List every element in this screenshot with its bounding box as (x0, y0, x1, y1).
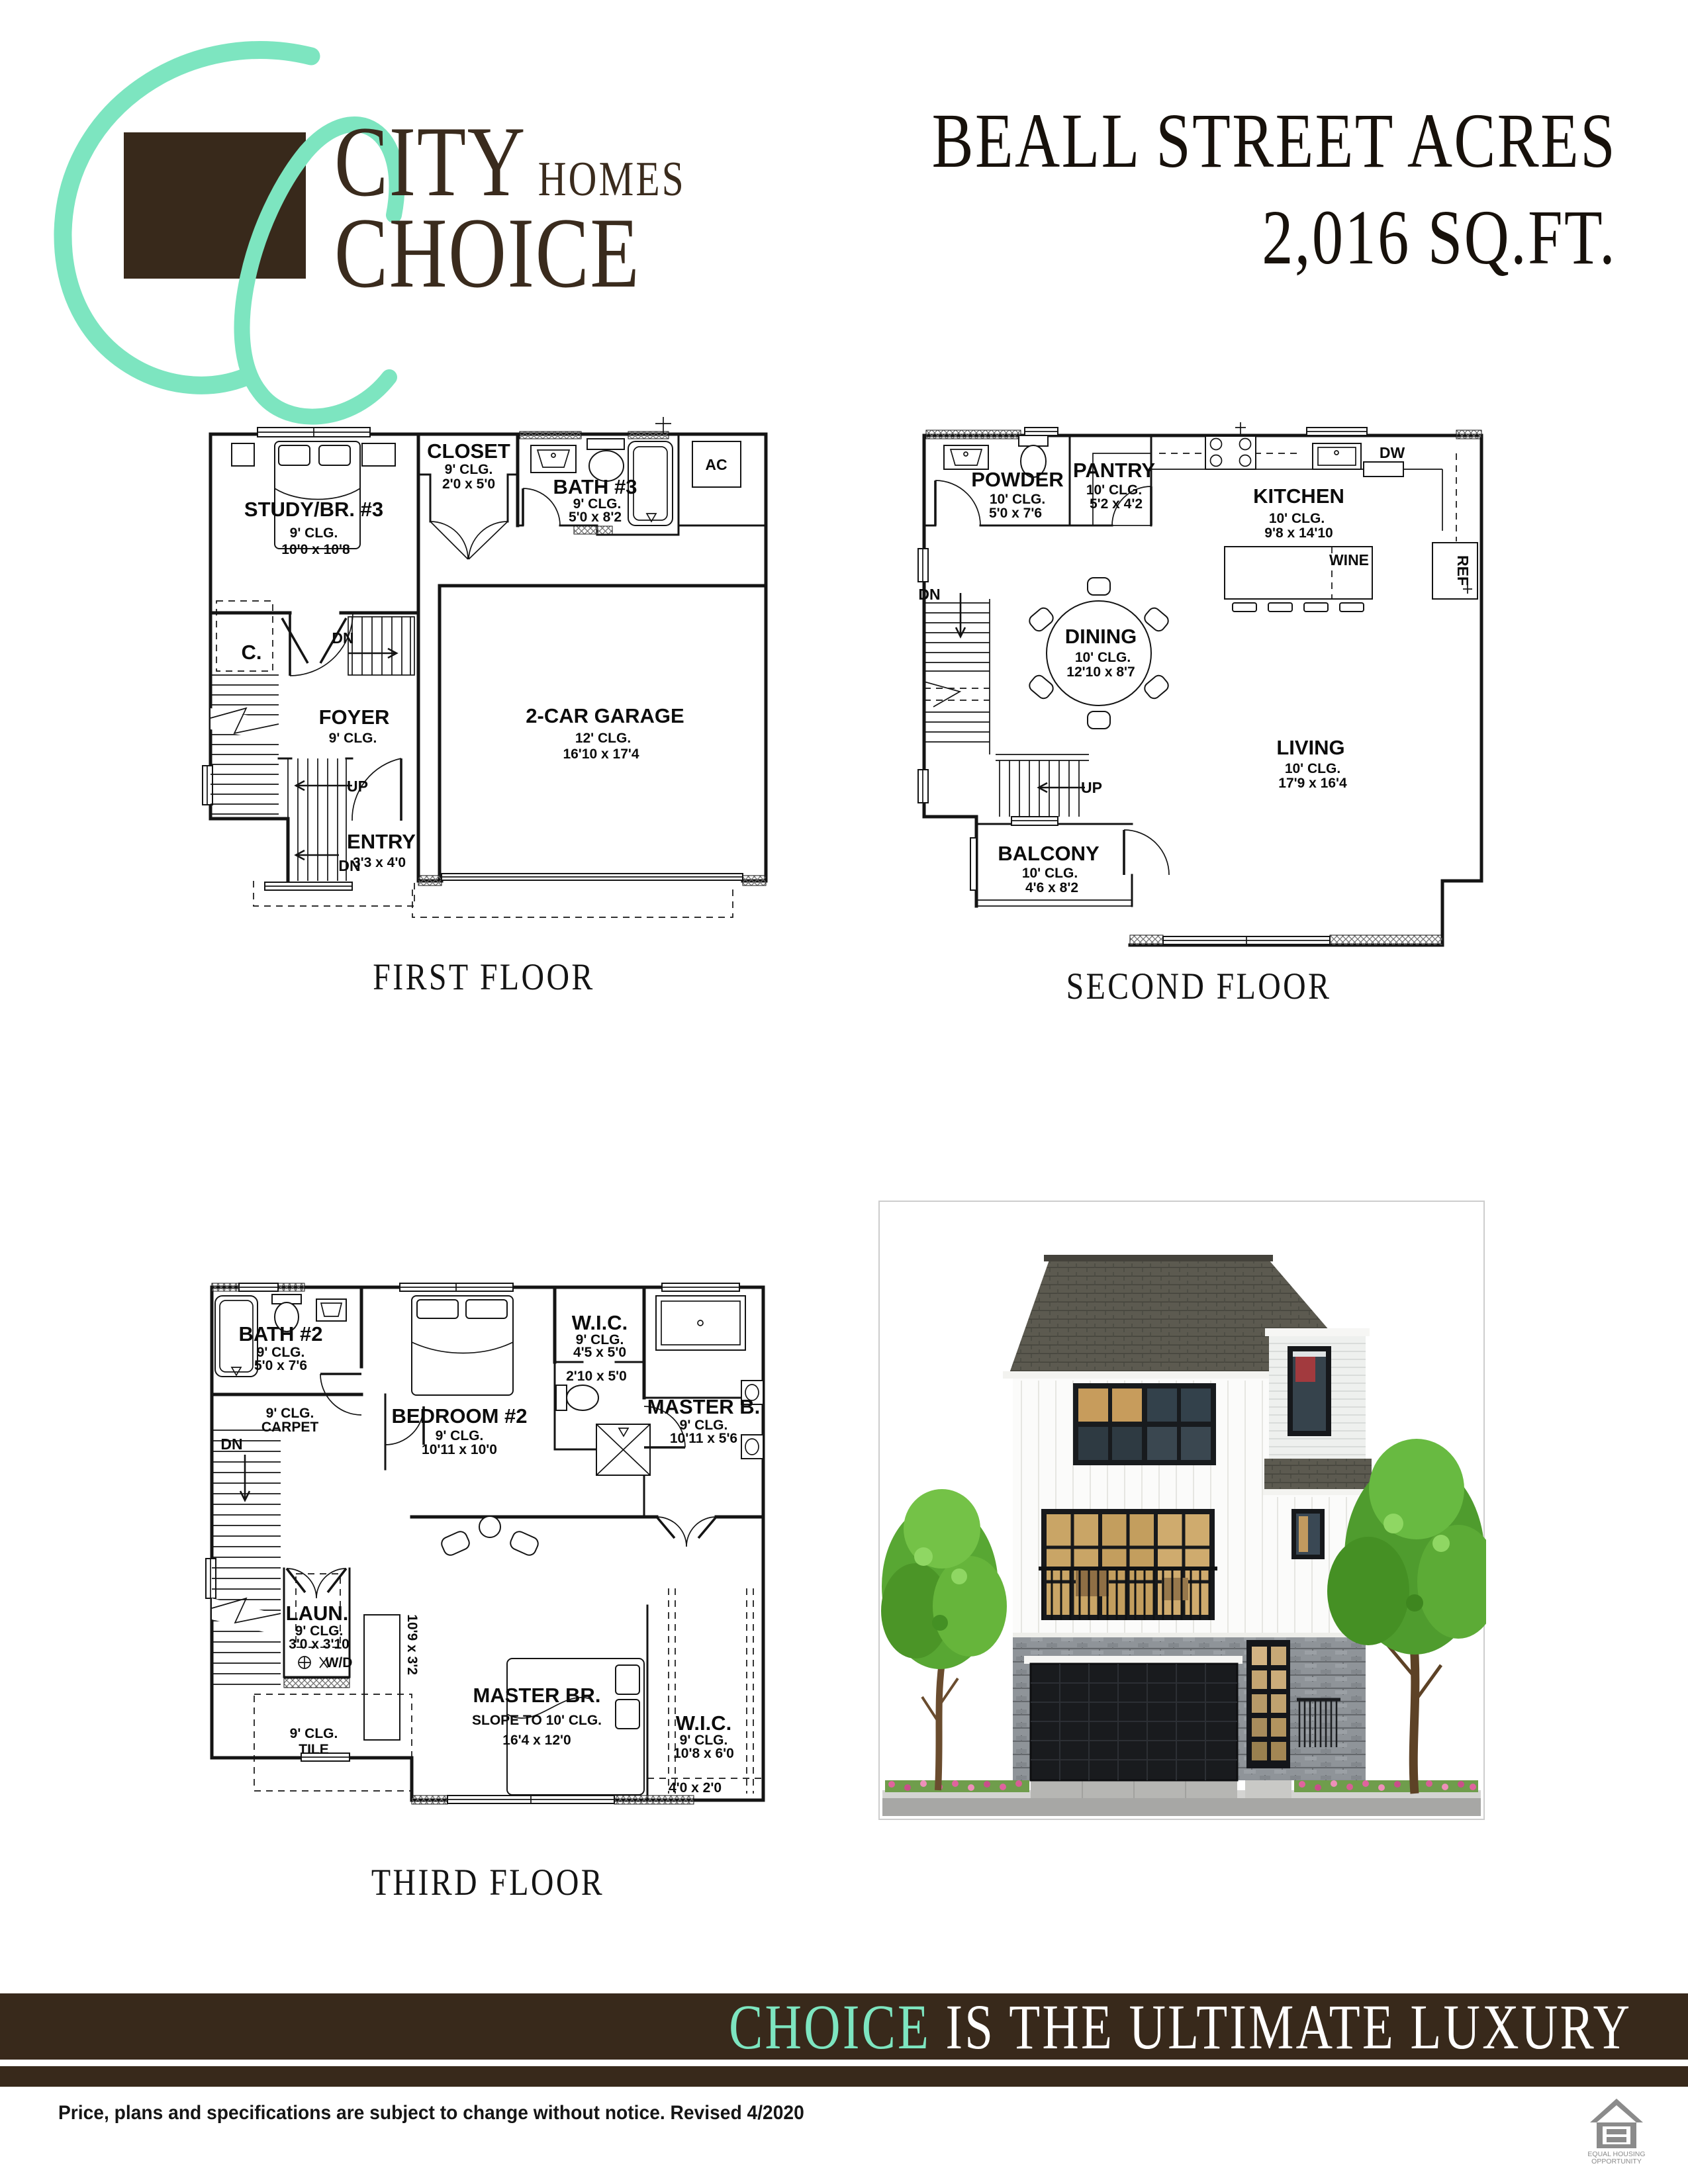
label-masterb-dims: 10'11 x 5'6 (670, 1431, 737, 1446)
brand-wordmark: CITY HOMES CHOICE (334, 111, 686, 303)
label-ac: AC (705, 456, 727, 473)
third-floor-plan: BATH #2 9' CLG. 5'0 x 7'6 BEDROOM #2 9' … (185, 1257, 781, 1853)
driveway (1031, 1779, 1291, 1798)
bedroom2-bed-icon (412, 1296, 513, 1395)
label-tile-floor: TILE (299, 1742, 329, 1757)
label-bath2-dims: 5'0 x 7'6 (254, 1358, 307, 1373)
label-bedroom2: BEDROOM #2 (392, 1404, 528, 1428)
label-wic2: W.I.C. (676, 1711, 731, 1735)
label-entry-dims: 3'3 x 4'0 (353, 855, 406, 870)
label-up: UP (1081, 779, 1102, 796)
label-study: STUDY/BR. #3 (244, 498, 383, 521)
label-dn: DN (918, 586, 940, 603)
dashed-outlines (216, 601, 733, 917)
main-roof (1008, 1260, 1269, 1377)
label-kitchen: KITCHEN (1253, 484, 1344, 508)
label-bedroom2-dims: 10'11 x 10'0 (422, 1442, 497, 1457)
caption-second-floor: SECOND FLOOR (1027, 965, 1372, 1008)
label-landing-clg: 9' CLG. (266, 1406, 314, 1421)
label-foyer: FOYER (319, 705, 390, 729)
label-dining: DINING (1065, 625, 1137, 648)
label-masterbr: MASTER BR. (473, 1684, 601, 1707)
label-pantry: PANTRY (1073, 459, 1155, 482)
label-bath2: BATH #2 (239, 1322, 323, 1345)
tagline-banner: CHOICE IS THE ULTIMATE LUXURY (0, 1993, 1688, 2060)
sitting-area (440, 1516, 540, 1557)
room-labels: POWDER 10' CLG. 5'0 x 7'6 PANTRY 10' CLG… (918, 444, 1472, 895)
equal-housing-line2: OPPORTUNITY (1591, 2158, 1642, 2165)
house-rendering (877, 1199, 1486, 1821)
tagline-rest: IS THE ULTIMATE LUXURY (931, 1990, 1632, 2064)
garage-door (442, 874, 743, 880)
caption-third-floor: THIRD FLOOR (316, 1861, 661, 1904)
plan-title: BEALL STREET ACRES 2,016 SQ.FT. (932, 93, 1617, 287)
caption-first-floor: FIRST FLOOR (312, 956, 657, 999)
label-living-clg: 10' CLG. (1285, 761, 1340, 776)
label-balcony-clg: 10' CLG. (1022, 866, 1078, 881)
equal-housing-house-icon (1590, 2099, 1643, 2148)
label-balcony: BALCONY (998, 842, 1100, 865)
plan-title-line1: BEALL STREET ACRES (932, 93, 1617, 189)
banner-lower-band (0, 2066, 1688, 2087)
label-dining-dims: 12'10 x 8'7 (1066, 664, 1135, 680)
label-laun: LAUN. (286, 1602, 349, 1625)
label-dn-upper: DN (332, 629, 353, 647)
label-wd: W/D (326, 1655, 353, 1670)
label-wic1-dims: 4'5 x 5'0 (573, 1345, 626, 1360)
label-garage-clg: 12' CLG. (575, 731, 631, 746)
label-study-dims: 10'0 x 10'8 (281, 542, 350, 557)
label-kitchen-clg: 10' CLG. (1269, 511, 1325, 526)
label-wine: WINE (1329, 551, 1369, 569)
label-toilet-dims: 2'10 x 5'0 (566, 1369, 627, 1384)
label-laun-dims: 3'0 x 3'10 (289, 1637, 350, 1652)
label-c-closet: C. (242, 641, 262, 664)
label-hall-dims: 10'9 x 3'2 (404, 1614, 420, 1675)
label-garage-dims: 16'10 x 17'4 (563, 747, 639, 762)
label-dn: DN (220, 1435, 242, 1453)
footer-disclaimer: Price, plans and specifications are subj… (58, 2102, 804, 2124)
label-pantry-clg: 10' CLG. (1086, 482, 1142, 498)
label-ref: REF (1454, 555, 1472, 586)
main-window (1039, 1509, 1217, 1620)
plan-title-line2: 2,016 SQ.FT. (932, 189, 1617, 286)
tagline-highlight: CHOICE (729, 1990, 931, 2064)
label-closet: CLOSET (427, 439, 510, 463)
tower-roof-band (1264, 1459, 1372, 1492)
brand-homes: HOMES (538, 155, 686, 204)
label-balcony-dims: 4'6 x 8'2 (1025, 880, 1078, 895)
label-bath3: BATH #3 (553, 475, 637, 498)
label-living: LIVING (1276, 736, 1344, 759)
label-dn-lower: DN (338, 857, 360, 874)
label-masterbr-slope: SLOPE TO 10' CLG. (472, 1713, 602, 1728)
tower-tall-window (1288, 1346, 1331, 1436)
label-masterbr-dims: 16'4 x 12'0 (502, 1733, 571, 1748)
flyer-page: CITY HOMES CHOICE BEALL STREET ACRES 2,0… (0, 0, 1688, 2184)
label-up: UP (347, 778, 368, 795)
second-floor-plan: POWDER 10' CLG. 5'0 x 7'6 PANTRY 10' CLG… (887, 397, 1496, 1059)
label-wic2-dims: 10'8 x 6'0 (673, 1746, 734, 1761)
label-entry: ENTRY (347, 830, 416, 853)
garage-door (1024, 1656, 1243, 1780)
label-dw: DW (1380, 444, 1405, 461)
tagline-text: CHOICE IS THE ULTIMATE LUXURY (729, 1993, 1632, 2060)
label-closet-clg: 9' CLG. (445, 462, 493, 477)
label-wic1: W.I.C. (572, 1311, 628, 1334)
tower-small-window (1291, 1509, 1325, 1559)
label-bedroom2-clg: 9' CLG. (436, 1428, 484, 1443)
label-garage: 2-CAR GARAGE (526, 704, 684, 727)
stairs (212, 1430, 281, 1684)
label-masterb: MASTER B. (647, 1395, 761, 1418)
label-foyer-clg: 9' CLG. (329, 731, 377, 746)
label-living-dims: 17'9 x 16'4 (1278, 776, 1347, 791)
label-porch-dims: 4'0 x 2'0 (669, 1780, 722, 1796)
label-bath3-dims: 5'0 x 8'2 (569, 510, 622, 525)
label-pantry-dims: 5'2 x 4'2 (1090, 496, 1143, 512)
label-closet-dims: 2'0 x 5'0 (442, 477, 495, 492)
clerestory-window (1073, 1383, 1216, 1465)
equal-housing-logo: EQUAL HOUSING OPPORTUNITY (1586, 2097, 1647, 2165)
label-powder-dims: 5'0 x 7'6 (989, 506, 1042, 521)
label-landing-floor: CARPET (261, 1420, 319, 1435)
label-study-clg: 9' CLG. (290, 525, 338, 541)
label-tile-clg: 9' CLG. (290, 1726, 338, 1741)
label-kitchen-dims: 9'8 x 14'10 (1264, 525, 1333, 541)
label-powder-clg: 10' CLG. (990, 492, 1045, 507)
label-powder: POWDER (971, 468, 1064, 491)
label-dining-clg: 10' CLG. (1075, 650, 1131, 665)
brand-choice: CHOICE (334, 203, 686, 303)
